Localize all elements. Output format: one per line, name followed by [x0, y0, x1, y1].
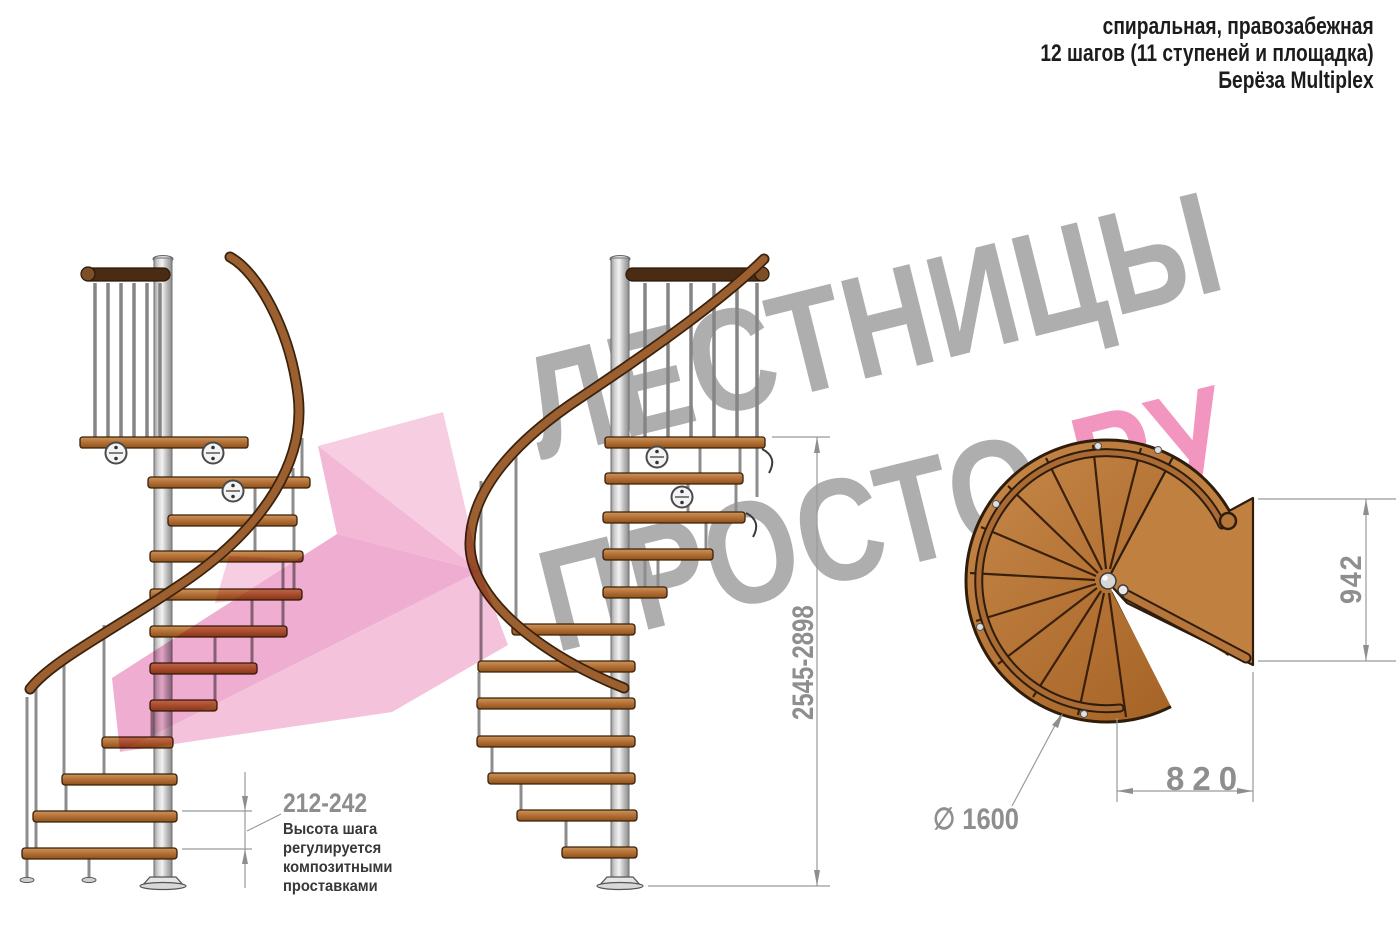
title-type: спиральная, правозабежная	[1041, 13, 1374, 40]
title-steps: 12 шагов (11 ступеней и площадка)	[1041, 40, 1374, 67]
pink-arrow-watermark	[0, 0, 1400, 947]
title-block: спиральная, правозабежная 12 шагов (11 с…	[1041, 13, 1374, 94]
title-material: Берёза Multiplex	[1041, 67, 1374, 94]
drawing-canvas: ЛЕСТНИЦЫ ПРОСТО.РУ	[0, 0, 1400, 947]
